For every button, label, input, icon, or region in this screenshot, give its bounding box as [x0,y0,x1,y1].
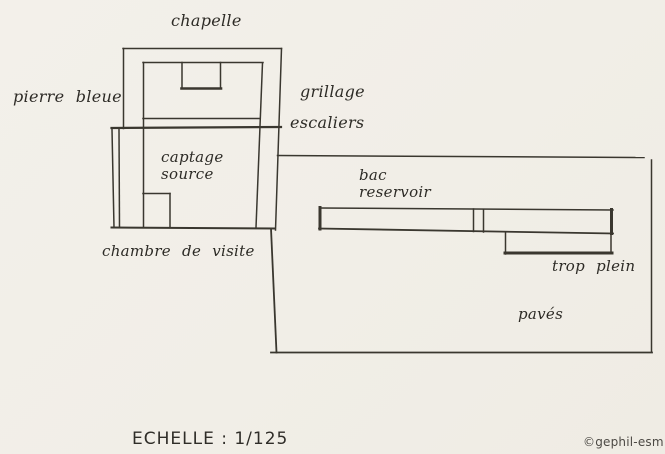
chapel-inner-wall-right [256,63,263,228]
label-bac-line2: reservoir [359,183,431,201]
credit-watermark: ©gephil-esm [583,435,664,449]
bac-bottom [319,229,613,234]
plan-linework [0,0,665,454]
label-pierre-bleue: pierre bleue [13,87,122,106]
pierre-bleue-column-left [112,130,114,228]
courtyard-wall-left [271,229,277,353]
label-captage-line1: captage [161,148,224,166]
label-bac-line1: bac [359,166,387,184]
label-escaliers: escaliers [290,113,364,132]
captage-bottom-wall [112,228,276,229]
pierre-bleue-column-right [119,130,120,228]
label-paves: pavés [518,305,563,323]
chapel-outer-wall-right [276,49,282,231]
label-captage-source: captagesource [161,149,224,183]
label-grillage: grillage [300,82,365,101]
label-chambre-de-visite: chambre de visite [102,242,255,260]
scanned-plan-page: chapelle pierre bleue grillage escaliers… [0,0,665,454]
label-bac-reservoir: bacreservoir [359,167,431,201]
scale-label: ECHELLE : 1/125 [132,429,288,449]
bac-top [320,208,613,210]
captage-top-wall [112,127,282,128]
label-chapelle: chapelle [171,11,242,30]
courtyard-wall-top [278,156,645,158]
label-captage-line2: source [161,165,214,183]
label-trop-plein: trop plein [552,257,635,275]
